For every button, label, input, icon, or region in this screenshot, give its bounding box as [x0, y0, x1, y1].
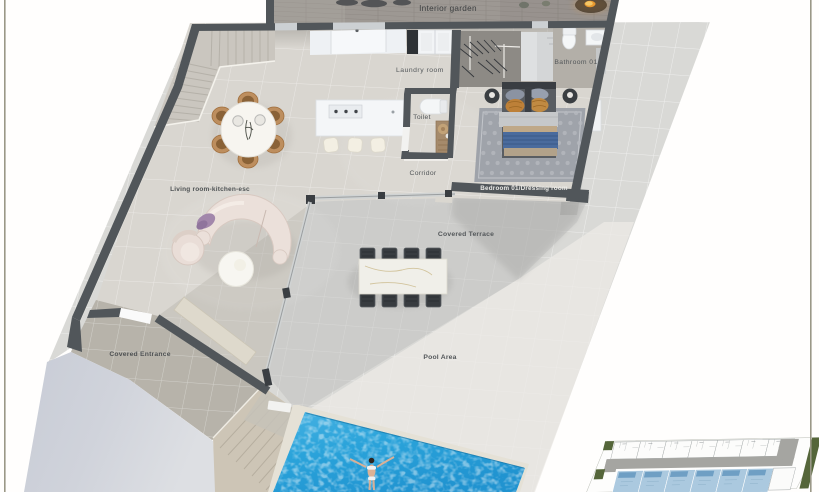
svg-text:Covered Entrance: Covered Entrance: [109, 351, 170, 358]
svg-text:Interior garden: Interior garden: [419, 4, 477, 13]
svg-text:Laundry room: Laundry room: [396, 67, 444, 74]
svg-text:Bedroom 01/Dressing room: Bedroom 01/Dressing room: [480, 185, 568, 192]
svg-text:Living room-kitchen-esc: Living room-kitchen-esc: [170, 186, 250, 193]
svg-text:Bathroom 01: Bathroom 01: [554, 59, 597, 66]
svg-text:Pool Area: Pool Area: [423, 354, 456, 361]
svg-text:Toilet: Toilet: [413, 114, 431, 121]
svg-text:Covered Terrace: Covered Terrace: [438, 231, 494, 238]
svg-text:Corridor: Corridor: [410, 170, 437, 177]
